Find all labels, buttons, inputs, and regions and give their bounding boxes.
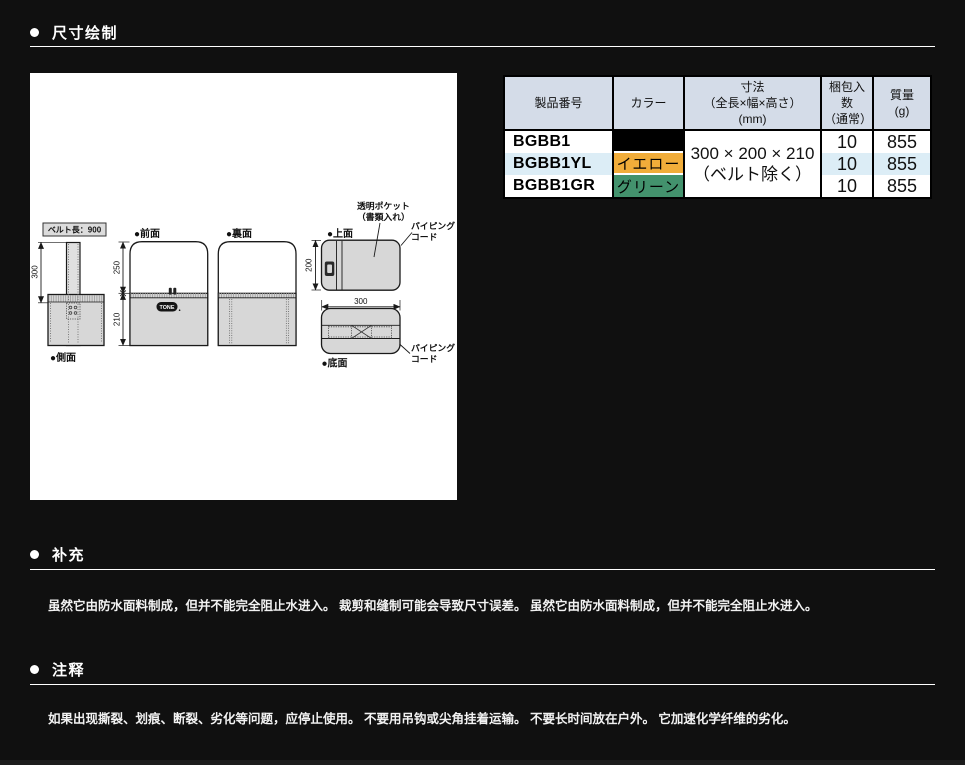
product-spec-page: { "sections": { "dimension_drawing": { "…	[0, 0, 965, 765]
size-header-line3: (mm)	[739, 112, 767, 126]
bottom-view-label: ●底面	[322, 357, 348, 370]
piping-cord-bottom-line2: コード	[411, 354, 437, 364]
pack-qty-cell: 10	[821, 153, 873, 175]
table-header-row: 製品番号 カラー 寸法 （全長×幅×高さ） (mm) 梱包入数 （通常） 質量 …	[504, 76, 931, 130]
dim-front-250: 250	[113, 260, 122, 274]
back-view: ●裏面	[218, 227, 296, 346]
mass-header-line1: 質量	[890, 88, 914, 102]
leader-line	[400, 344, 411, 354]
bullet-icon	[30, 550, 39, 559]
front-view: TONE 250 210 ●前面	[113, 227, 208, 346]
size-header-line2: （全長×幅×高さ）	[703, 96, 801, 110]
section-title: 补充	[52, 544, 85, 565]
product-no-cell: BGBB1YL	[504, 153, 613, 175]
belt-length-text: ベルト長：900	[48, 226, 102, 235]
mass-cell: 855	[873, 130, 931, 153]
col-header-product-no: 製品番号	[504, 76, 613, 130]
tone-logo-text: TONE	[160, 305, 175, 311]
mass-cell: 855	[873, 175, 931, 198]
section-divider	[30, 569, 935, 570]
section-header-supplement: 补充	[30, 544, 85, 565]
product-no-cell: BGBB1	[504, 130, 613, 153]
color-swatch-green: グリーン	[614, 175, 683, 197]
side-view: 300 ●側面	[31, 242, 105, 364]
section-title: 注释	[52, 659, 85, 680]
size-header-line1: 寸法	[740, 80, 764, 94]
color-cell: イエロー	[613, 153, 684, 175]
bottom-view: パイピング コード ●底面	[322, 309, 456, 370]
bullet-icon	[30, 28, 39, 37]
dim-top-200: 200	[305, 258, 314, 272]
section-divider	[30, 46, 935, 47]
clear-pocket-label-line2: （書類入れ）	[357, 211, 410, 222]
col-header-pack-qty: 梱包入数 （通常）	[821, 76, 873, 130]
color-swatch-black: ブラック	[614, 131, 683, 151]
col-header-size: 寸法 （全長×幅×高さ） (mm)	[684, 76, 821, 130]
piping-cord-top-line2: コード	[411, 232, 437, 242]
dim-side-300: 300	[31, 265, 40, 279]
page-bottom-strip	[0, 760, 965, 765]
mass-cell: 855	[873, 153, 931, 175]
side-view-label: ●側面	[50, 351, 76, 364]
section-title: 尺寸绘制	[52, 22, 118, 43]
back-view-label: ●裏面	[226, 227, 252, 240]
pack-qty-cell: 10	[821, 130, 873, 153]
table-row: BGBB1 ブラック 300 × 200 × 210 （ベルト除く） 10 85…	[504, 130, 931, 153]
pack-header-line1: 梱包入数	[829, 80, 865, 110]
zipper-pull-icon	[169, 288, 172, 295]
color-cell: グリーン	[613, 175, 684, 198]
size-value-cell: 300 × 200 × 210 （ベルト除く）	[684, 130, 821, 198]
col-header-color: カラー	[613, 76, 684, 130]
pack-header-line2: （通常）	[824, 112, 872, 126]
belt-length-label: ベルト長：900	[43, 223, 106, 236]
pack-qty-cell: 10	[821, 175, 873, 198]
product-spec-table: 製品番号 カラー 寸法 （全長×幅×高さ） (mm) 梱包入数 （通常） 質量 …	[503, 75, 932, 199]
top-view: 200 300 ●上面 透明ポケット （書類入れ） パイピング コード	[305, 200, 456, 311]
bag-dimension-diagram: ベルト長：900 300 ●側面 TONE	[30, 73, 457, 500]
notes-text: 如果出现撕裂、划痕、断裂、劣化等问题，应停止使用。 不要用吊钩或尖角挂着运输。 …	[48, 710, 938, 729]
product-no-cell: BGBB1GR	[504, 175, 613, 198]
piping-cord-top-line1: パイピング	[411, 220, 455, 231]
mass-header-line2: (g)	[895, 104, 910, 118]
color-swatch-yellow: イエロー	[614, 153, 683, 173]
size-value-line2: （ベルト除く）	[693, 165, 812, 184]
top-view-label: ●上面	[327, 227, 353, 240]
front-view-label: ●前面	[134, 227, 160, 240]
section-divider	[30, 684, 935, 685]
clear-pocket-label-line1: 透明ポケット	[357, 200, 410, 211]
bullet-icon	[30, 665, 39, 674]
section-header-notes: 注释	[30, 659, 85, 680]
section-header-dimension-drawing: 尺寸绘制	[30, 22, 118, 43]
color-cell: ブラック	[613, 130, 684, 153]
dim-front-210: 210	[113, 312, 122, 326]
size-value-line1: 300 × 200 × 210	[691, 144, 815, 163]
piping-cord-bottom-line1: パイピング	[411, 342, 455, 353]
col-header-mass: 質量 (g)	[873, 76, 931, 130]
dim-top-300: 300	[354, 297, 368, 306]
technical-drawing-panel: ベルト長：900 300 ●側面 TONE	[30, 73, 457, 500]
supplement-text: 虽然它由防水面料制成，但并不能完全阻止水进入。 裁剪和缝制可能会导致尺寸误差。 …	[48, 597, 938, 616]
